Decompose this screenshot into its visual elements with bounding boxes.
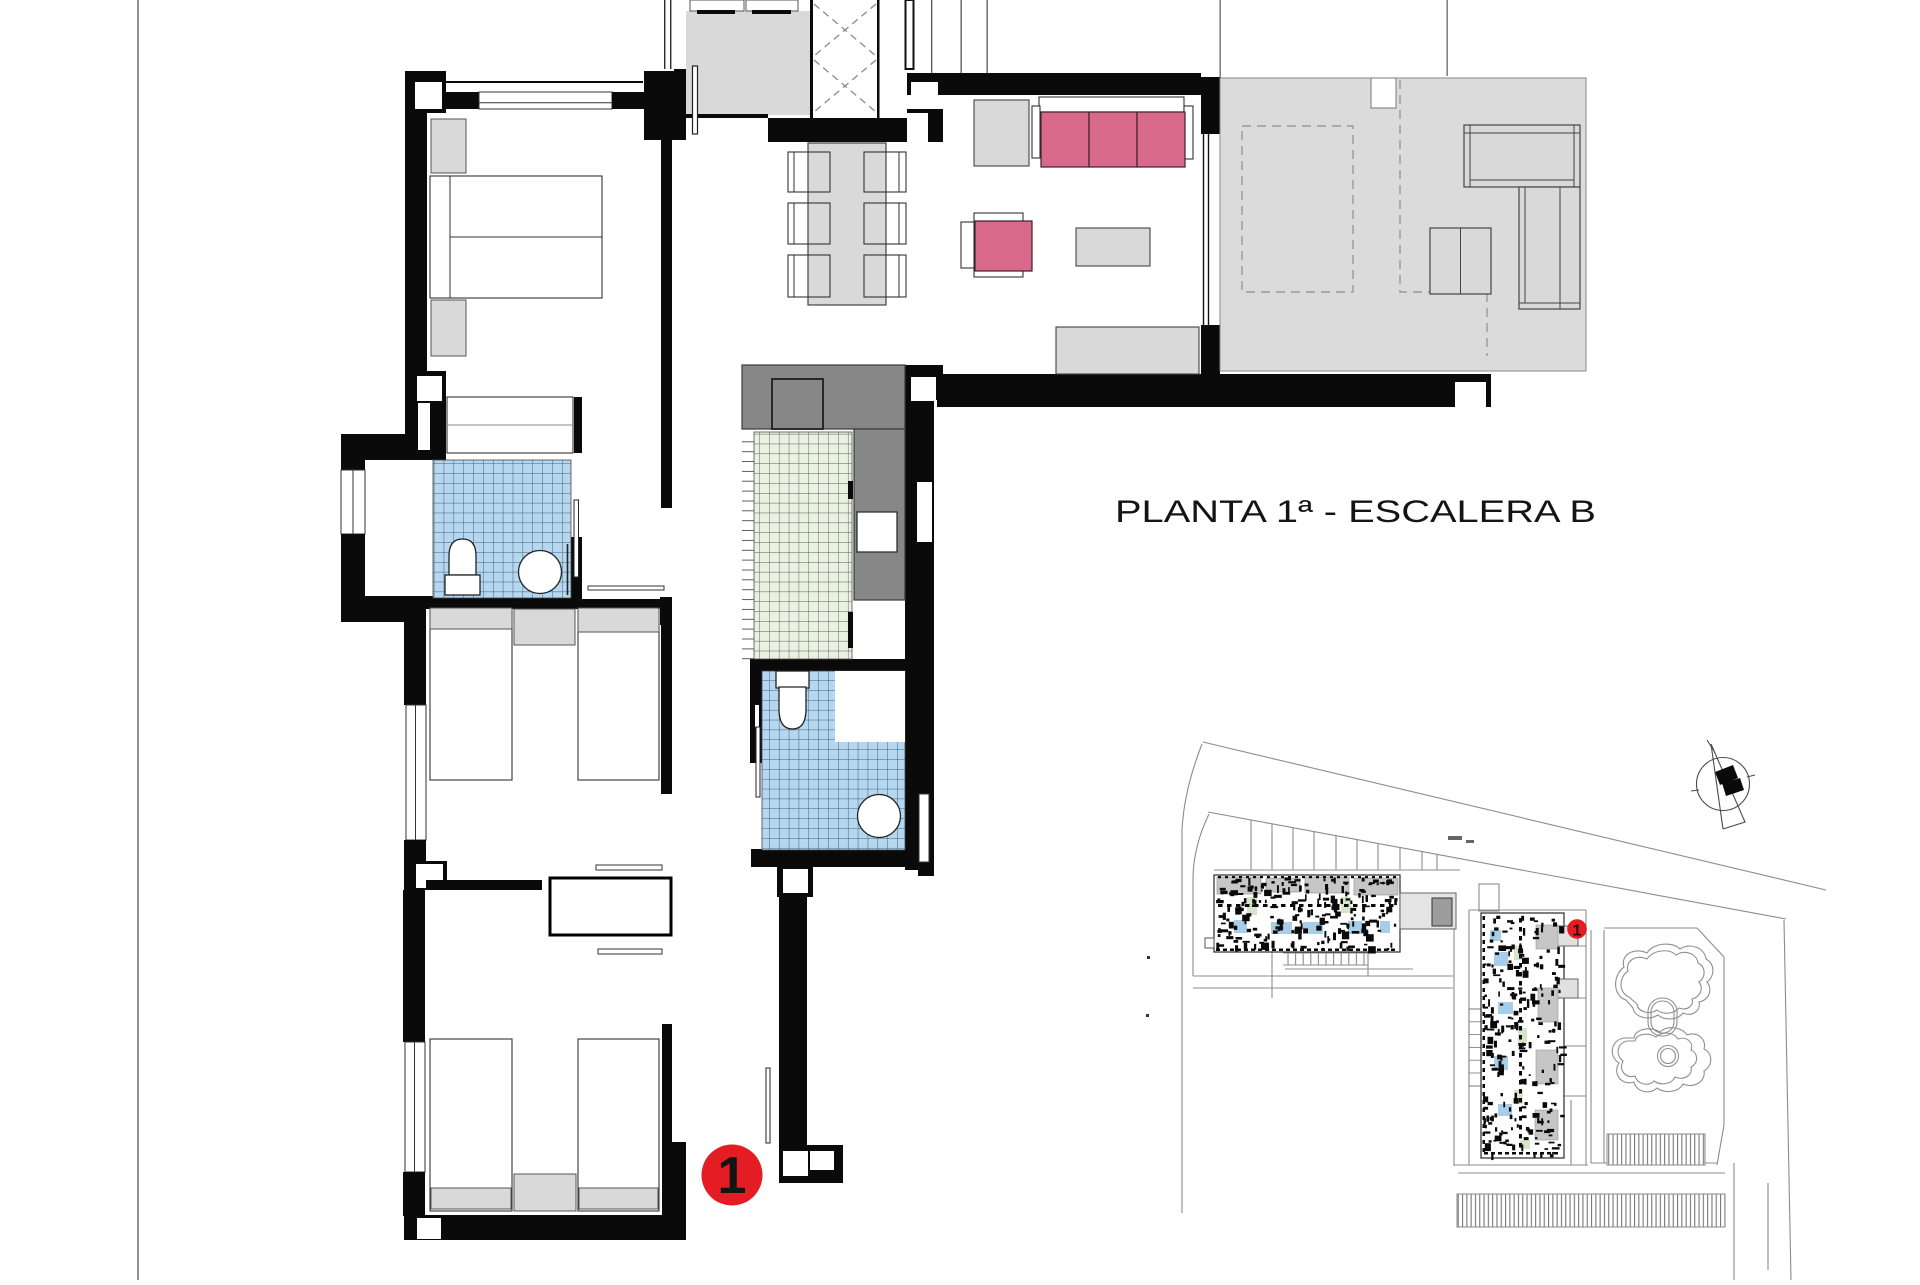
svg-text:1: 1	[718, 1147, 747, 1205]
svg-text:1: 1	[1573, 923, 1582, 940]
svg-text:PLANTA 1ª - ESCALERA B: PLANTA 1ª - ESCALERA B	[1115, 493, 1596, 529]
